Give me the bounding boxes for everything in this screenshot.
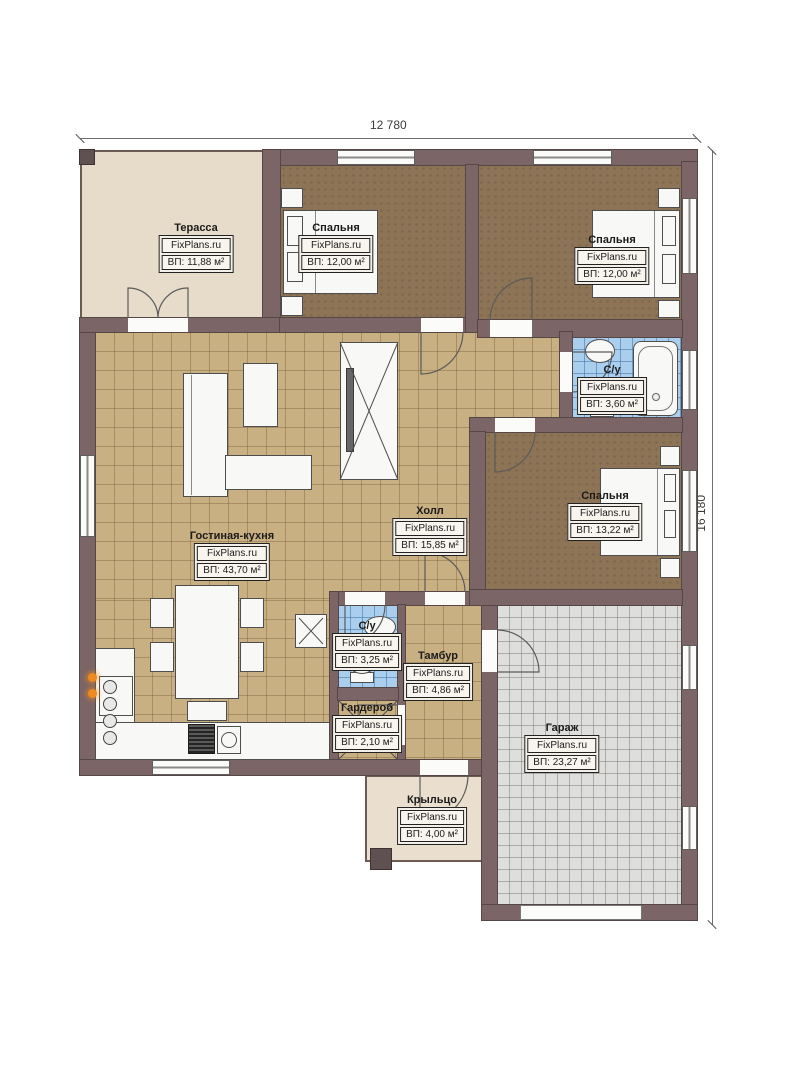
- nightstand: [660, 558, 680, 578]
- pillow: [664, 474, 676, 502]
- window-bedroom2-right: [682, 198, 697, 274]
- wall-garage-top: [470, 590, 682, 605]
- floor-plan: 12 780 16 180: [0, 0, 792, 1080]
- door-opening-terrace: [128, 318, 188, 332]
- door-opening-bathroom1: [560, 352, 572, 392]
- room-label-bedroom2: Спальня FixPlans.ru ВП: 12,00 м²: [574, 234, 649, 285]
- room-name: Гостиная-кухня: [190, 530, 274, 542]
- pillow: [662, 254, 676, 284]
- label-box: FixPlans.ru ВП: 12,00 м²: [574, 247, 649, 285]
- window-garage-1: [682, 645, 697, 690]
- brand-watermark: FixPlans.ru: [335, 718, 399, 733]
- window-kitchen: [152, 760, 230, 775]
- nightstand: [660, 446, 680, 466]
- label-box: FixPlans.ru ВП: 13,22 м²: [567, 503, 642, 541]
- washbasin: [585, 339, 615, 363]
- dimension-height-line: [712, 150, 713, 925]
- room-label-tambur: Тамбур FixPlans.ru ВП: 4,86 м²: [403, 650, 473, 701]
- label-box: FixPlans.ru ВП: 2,10 м²: [332, 715, 402, 753]
- chair: [150, 642, 174, 672]
- label-box: FixPlans.ru ВП: 12,00 м²: [298, 235, 373, 273]
- nightstand: [658, 188, 680, 208]
- door-opening-bedroom2: [490, 320, 532, 337]
- room-label-terrace: Терасса FixPlans.ru ВП: 11,88 м²: [159, 222, 234, 273]
- fridge: [295, 614, 327, 648]
- room-name: С/у: [603, 364, 620, 376]
- window-bedroom1: [337, 150, 415, 165]
- dimension-width-label: 12 780: [370, 118, 407, 132]
- brand-watermark: FixPlans.ru: [301, 238, 370, 253]
- window-living: [80, 455, 95, 537]
- pillow: [662, 216, 676, 246]
- room-name: Холл: [416, 505, 444, 517]
- room-label-wardrobe: Гардероб FixPlans.ru ВП: 2,10 м²: [332, 702, 402, 753]
- burner-icon: [103, 731, 117, 745]
- drain-icon: [652, 393, 660, 401]
- chair: [187, 701, 227, 721]
- sink-basin: [221, 732, 237, 748]
- oven: [188, 724, 215, 754]
- nightstand: [281, 188, 303, 208]
- room-area: ВП: 43,70 м²: [197, 563, 266, 578]
- window-bathroom1: [682, 350, 697, 410]
- coffee-table: [243, 363, 278, 427]
- blanket-line: [657, 469, 658, 555]
- label-box: FixPlans.ru ВП: 3,60 м²: [577, 377, 647, 415]
- brand-watermark: FixPlans.ru: [580, 380, 644, 395]
- brand-watermark: FixPlans.ru: [162, 238, 231, 253]
- room-area: ВП: 13,22 м²: [570, 523, 639, 538]
- room-area: ВП: 4,86 м²: [406, 683, 470, 698]
- dining-table: [175, 585, 239, 699]
- nightstand: [281, 296, 303, 316]
- room-label-bathroom2: С/у FixPlans.ru ВП: 3,25 м²: [332, 620, 402, 671]
- brand-watermark: FixPlans.ru: [406, 666, 470, 681]
- room-name: Спальня: [312, 222, 360, 234]
- label-box: FixPlans.ru ВП: 3,25 м²: [332, 633, 402, 671]
- sofa-back-line: [191, 375, 192, 495]
- room-label-hall: Холл FixPlans.ru ВП: 15,85 м²: [392, 505, 467, 556]
- window-bedroom3: [682, 470, 697, 552]
- brand-watermark: FixPlans.ru: [400, 810, 464, 825]
- gas-flame-icon: [88, 689, 97, 698]
- porch-pillar: [371, 849, 391, 869]
- room-area: ВП: 23,27 м²: [527, 755, 596, 770]
- door-opening-bedroom1: [421, 318, 463, 332]
- wall-bedrooms-divider: [466, 165, 478, 332]
- room-name: Спальня: [581, 490, 629, 502]
- room-label-garage: Гараж FixPlans.ru ВП: 23,27 м²: [524, 722, 599, 773]
- room-name: Тамбур: [418, 650, 458, 662]
- label-box: FixPlans.ru ВП: 11,88 м²: [159, 235, 234, 273]
- room-name: Крыльцо: [407, 794, 457, 806]
- gas-flame-icon: [88, 673, 97, 682]
- room-name: Спальня: [588, 234, 636, 246]
- room-label-bedroom1: Спальня FixPlans.ru ВП: 12,00 м²: [298, 222, 373, 273]
- label-box: FixPlans.ru ВП: 15,85 м²: [392, 518, 467, 556]
- room-area: ВП: 3,25 м²: [335, 653, 399, 668]
- blanket-line: [654, 211, 655, 297]
- door-opening-bathroom2: [345, 592, 385, 605]
- chair: [240, 598, 264, 628]
- sofa-horizontal: [225, 455, 312, 490]
- room-area: ВП: 12,00 м²: [577, 267, 646, 282]
- room-area: ВП: 12,00 м²: [301, 255, 370, 270]
- chair: [150, 598, 174, 628]
- room-name: С/у: [358, 620, 375, 632]
- room-name: Терасса: [174, 222, 218, 234]
- nightstand: [658, 300, 680, 318]
- brand-watermark: FixPlans.ru: [577, 250, 646, 265]
- room-label-living: Гостиная-кухня FixPlans.ru ВП: 43,70 м²: [190, 530, 274, 581]
- brand-watermark: FixPlans.ru: [395, 521, 464, 536]
- room-area: ВП: 11,88 м²: [162, 255, 231, 270]
- room-label-porch: Крыльцо FixPlans.ru ВП: 4,00 м²: [397, 794, 467, 845]
- burner-icon: [103, 697, 117, 711]
- label-box: FixPlans.ru ВП: 4,00 м²: [397, 807, 467, 845]
- label-box: FixPlans.ru ВП: 43,70 м²: [194, 543, 269, 581]
- door-opening-porch: [420, 760, 468, 775]
- room-name: Гардероб: [341, 702, 393, 714]
- brand-watermark: FixPlans.ru: [197, 546, 266, 561]
- pillow: [664, 510, 676, 538]
- terrace-pillar: [80, 150, 94, 164]
- window-garage-2: [682, 806, 697, 850]
- label-box: FixPlans.ru ВП: 4,86 м²: [403, 663, 473, 701]
- door-opening-garage: [482, 630, 497, 672]
- window-bedroom2-top: [533, 150, 612, 165]
- room-label-bathroom1: С/у FixPlans.ru ВП: 3,60 м²: [577, 364, 647, 415]
- tv-console: [346, 368, 354, 452]
- room-area: ВП: 3,60 м²: [580, 397, 644, 412]
- wall-left: [80, 318, 95, 775]
- wall-top: [263, 150, 697, 165]
- room-name: Гараж: [546, 722, 579, 734]
- room-area: ВП: 4,00 м²: [400, 827, 464, 842]
- dimension-width-line: [80, 138, 697, 139]
- brand-watermark: FixPlans.ru: [570, 506, 639, 521]
- brand-watermark: FixPlans.ru: [527, 738, 596, 753]
- label-box: FixPlans.ru ВП: 23,27 м²: [524, 735, 599, 773]
- door-opening-tambur: [425, 592, 465, 605]
- brand-watermark: FixPlans.ru: [335, 636, 399, 651]
- door-opening-bedroom3: [495, 418, 535, 432]
- room-area: ВП: 15,85 м²: [395, 538, 464, 553]
- room-label-bedroom3: Спальня FixPlans.ru ВП: 13,22 м²: [567, 490, 642, 541]
- wall-bedroom3-left: [470, 432, 485, 590]
- wall-terrace-right: [263, 150, 280, 332]
- wall-wardrobe-top: [338, 688, 398, 700]
- room-area: ВП: 2,10 м²: [335, 735, 399, 750]
- sofa-vertical: [183, 373, 228, 497]
- chair: [240, 642, 264, 672]
- stove: [99, 676, 133, 716]
- burner-icon: [103, 714, 117, 728]
- garage-gate: [520, 905, 642, 920]
- burner-icon: [103, 680, 117, 694]
